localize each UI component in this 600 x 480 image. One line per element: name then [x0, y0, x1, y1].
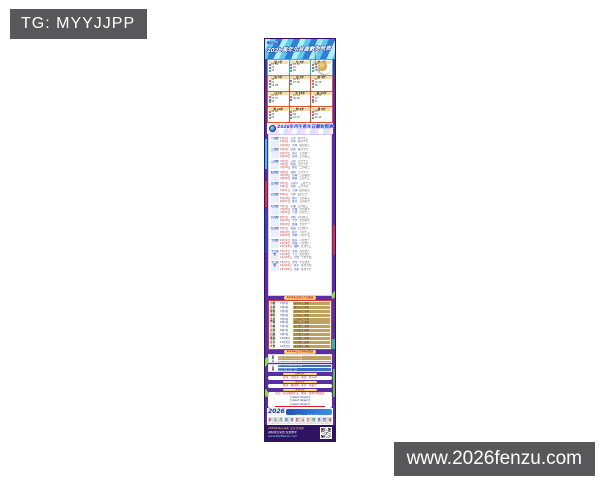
- term-detail: 冬月十七 辰时: [293, 302, 330, 305]
- zodiac-icon-strip: 鼠 07 牛 06 虎 05 兔 04: [267, 416, 333, 425]
- calendar-panel: 一月份 1月1日 元旦 冬月十三 1月5日 小寒: [268, 134, 332, 296]
- zodiac-first-number: 04: [285, 421, 288, 424]
- term-date: 1月5日: [280, 302, 292, 305]
- site-watermark: www.2026fenzu.com: [394, 442, 595, 476]
- term-date: 3月5日: [280, 310, 292, 313]
- zodiac-age: 1岁: [278, 92, 282, 95]
- month-group: 八月份 8月7日 立秋 六月廿五 8月19日 七夕: [271, 216, 330, 226]
- logo-banner-tag: ①正版: [293, 414, 302, 415]
- category-title: 四季生肖: [283, 373, 317, 376]
- calendar-term: 立夏: [291, 185, 296, 188]
- zodiac-number-rows: 02 14 26 38: [312, 79, 332, 88]
- zodiac-number-rows: 03 15 27 39: [290, 79, 310, 85]
- term-name: 立冬: [270, 341, 279, 344]
- zodiac-icon-cell: 蛇 02: [295, 417, 300, 425]
- ball-color-chip: [269, 80, 271, 82]
- table-row: 清明 4月5日 二月十八 卯时: [270, 314, 330, 317]
- summary-line: [object Object]: [269, 403, 331, 406]
- zodiac-number-row: 06: [290, 70, 310, 73]
- logo-banner-text: 马年资料大全: [307, 414, 325, 415]
- month-label: 五月份: [271, 182, 280, 192]
- zodiac-number-row: 16 28: [269, 85, 289, 88]
- poster-footer: 2026年丙午马年 五行天河水 资料永久免费 仅供参考 www.2026fenz…: [265, 425, 335, 441]
- table-row: 芒种 6月5日 四月二十 酉时: [270, 321, 330, 324]
- term-date: 6月5日: [280, 321, 292, 324]
- ball-color-chip: [312, 99, 314, 101]
- month-label: 十一月份: [271, 250, 280, 260]
- zodiac-name: 蛇: [318, 76, 321, 79]
- calendar-banner: 2026年丙午馬年日曆對照表: [267, 123, 333, 134]
- five-elements-block-2: 土 庚午 辛未 戊寅 己卯 丙戌 波 红波 蓝波 绿波 对照 合 单数 双数 大…: [268, 364, 332, 373]
- term-detail: 三月十九 午时: [293, 318, 330, 321]
- month-label: 一月份: [271, 137, 280, 147]
- poster-header: 正版资料 2026馬年生肖歲數對照表: [265, 39, 335, 59]
- month-group: 十二月份 12月7日 大雪 十月廿九 12月22日 冬: [271, 261, 330, 271]
- month-label: 八月份: [271, 216, 280, 226]
- zodiac-age: 8岁: [321, 108, 325, 111]
- month-group: 一月份 1月1日 元旦 冬月十三 1月5日 小寒: [271, 137, 330, 147]
- term-name: 寒露: [270, 337, 279, 340]
- ball-color-chip: [290, 70, 292, 72]
- calendar-term: 冬至: [294, 264, 299, 267]
- ball-color-chip: [290, 96, 292, 98]
- zodiac-number-rows: 45 09 21 33: [290, 111, 310, 120]
- table-row: 水 丙午 丁未 甲寅 乙卯 壬戌: [270, 361, 331, 363]
- zodiac-age: 4岁: [278, 76, 282, 79]
- zodiac-icon-cell: 马 01: [300, 417, 305, 425]
- zodiac-numbers: 21 33: [293, 117, 300, 120]
- ball-color-chip: [269, 96, 271, 98]
- month-group: 三月份 3月3日 元宵 正月十五 3月5日 惊蛰: [271, 160, 330, 170]
- zodiac-age: 3岁: [300, 76, 304, 79]
- zodiac-name: 狗: [296, 108, 299, 111]
- calendar-date: 12月25日: [280, 268, 292, 271]
- zodiac-number-row: 11: [312, 101, 332, 104]
- term-date: 2月4日: [280, 306, 292, 309]
- zodiac-cell: 兔 4岁 40 04: [268, 76, 289, 91]
- zodiac-icon-cell: 猪 08: [327, 417, 332, 425]
- calendar-term: 芒种: [291, 193, 296, 196]
- ball-color-chip: [290, 83, 292, 85]
- calendar-date: 6月21日: [280, 200, 290, 203]
- element-values: 庚午 辛未 戊寅 己卯 丙戌: [278, 365, 331, 367]
- zodiac-number-row: 22: [269, 117, 289, 120]
- month-rows: 3月3日 元宵 正月十五 3月5日 惊蛰 正月十七: [280, 160, 330, 170]
- table-row: 小寒 1月5日 冬月十七 辰时: [270, 302, 330, 305]
- zodiac-number-row: 38: [312, 85, 332, 88]
- calendar-row: 6月21日 夏至 五月初七: [280, 200, 330, 203]
- calendar-term: 春分: [292, 166, 297, 169]
- zodiac-numbers: 16 28: [271, 85, 278, 88]
- month-group: 六月份 6月5日 芒种 四月二十 6月19日 端午: [271, 193, 330, 203]
- edge-decoration-cyan: [265, 139, 267, 169]
- zodiac-icon-cell: 鸡 10: [317, 417, 322, 425]
- calendar-term: 雨水: [292, 155, 297, 158]
- zodiac-number-rows: 18 30 42 06: [290, 64, 310, 73]
- zodiac-numbers: 11: [315, 101, 318, 104]
- table-row: 白露 9月7日 七月廿六 巳时: [270, 333, 330, 336]
- calendar-row: 11月22日 小雪 十月十四: [280, 256, 330, 259]
- calendar-row: 8月23日 处暑 七月十一: [280, 223, 330, 226]
- month-label: 二月份: [271, 148, 280, 158]
- zodiac-summary-panel: [object Object] [object Object] [object …: [268, 395, 332, 408]
- zodiac-first-number: 11: [312, 421, 315, 424]
- zodiac-number-row: 49: [269, 101, 289, 104]
- edge-decoration-red-left: [265, 181, 267, 207]
- logo-strip: 2026 ①正版 马年资料大全: [267, 408, 333, 416]
- month-label: 九月份: [271, 227, 280, 237]
- zodiac-cell: 鸡 10岁 34 46 10: [268, 107, 289, 122]
- zodiac-number-rows: 07 19 31 43: [269, 64, 289, 73]
- calendar-term: 夏至: [292, 200, 297, 203]
- calendar-row: 3月20日 春分 二月初二: [280, 166, 330, 169]
- zodiac-age: 6岁: [300, 61, 304, 64]
- calendar-row: 7月25日 入伏 六月十二: [280, 211, 330, 214]
- calendar-row: 10月23日 霜降 九月十三: [280, 245, 330, 248]
- ball-color-chip: [312, 117, 314, 119]
- month-group: 九月份 9月7日 白露 七月廿六 9月23日 秋分: [271, 227, 330, 237]
- qr-code: [320, 427, 332, 439]
- edge-decoration-teal-right: [332, 339, 335, 349]
- calendar-lunar: 冬月十七: [301, 268, 311, 271]
- calendar-term: 入伏: [292, 211, 297, 214]
- zodiac-first-number: 01: [301, 421, 304, 424]
- month-rows: 12月7日 大雪 十月廿九 12月22日 冬至 冬月十四: [280, 261, 330, 271]
- edge-decoration-green-right: [333, 369, 335, 397]
- calendar-term: 佛诞: [292, 177, 297, 180]
- month-label: 十月份: [271, 239, 280, 249]
- table-row: 立春 2月4日 腊月十七 申时: [270, 306, 330, 309]
- logo-banner: ①正版 马年资料大全: [286, 409, 332, 415]
- category-text: 春肖：虎兔龙 夏肖：蛇马羊: [268, 376, 332, 380]
- zodiac-number-row: 32 44: [312, 117, 332, 120]
- month-label: 四月份: [271, 171, 280, 181]
- zodiac-first-number: 10: [318, 421, 321, 424]
- calendar-row: 2月19日 雨水 正月初三: [280, 155, 330, 158]
- month-rows: 9月7日 白露 七月廿六 9月23日 秋分 八月十三: [280, 227, 330, 237]
- zodiac-numbers: 06: [293, 70, 296, 73]
- ball-color-chip: [269, 64, 271, 66]
- month-rows: 1月1日 元旦 冬月十三 1月5日 小寒 冬月十七: [280, 137, 330, 147]
- zodiac-icon-cell: 牛 06: [273, 417, 278, 425]
- calendar-date: 8月23日: [280, 223, 290, 226]
- calendar-date: 4月29日: [280, 177, 290, 180]
- month-group: 七月份 7月7日 小暑 五月廿三 7月23日 大暑: [271, 205, 330, 215]
- month-label: 十二月份: [271, 261, 280, 271]
- calendar-date: 6月5日: [280, 193, 289, 196]
- calendar-banner-title: 2026年丙午馬年日曆對照表: [277, 126, 334, 130]
- table-row: 立夏 5月5日 三月十九 午时: [270, 318, 330, 321]
- term-date: 12月7日: [280, 345, 292, 348]
- zodiac-icon-cell: 龙 03: [289, 417, 294, 425]
- term-date: 11月7日: [280, 341, 292, 344]
- month-rows: 6月5日 芒种 四月二十 6月19日 端午 五月初五: [280, 193, 330, 203]
- calendar-date: 1月5日: [280, 140, 289, 143]
- zodiac-numbers: 36 48: [293, 98, 300, 101]
- tg-watermark: TG: MYYJJPP: [10, 9, 147, 39]
- calendar-term: 霜降: [294, 245, 299, 248]
- footer-line: www.2026fenzu.com: [268, 435, 314, 439]
- ball-color-chip: [290, 99, 292, 101]
- ball-color-chip: [269, 101, 271, 103]
- ball-color-chip: [312, 70, 314, 72]
- zodiac-cell: 龙 3岁 03 15 27 39: [290, 76, 311, 91]
- calendar-term: 处暑: [292, 223, 297, 226]
- zodiac-category-banners: 四季生肖 春肖：虎兔龙 夏肖：蛇马羊 秋冬生肖 秋肖：猴鸡狗 冬肖：猪鼠牛 天地…: [268, 372, 332, 395]
- calendar-lunar: 五月初七: [299, 200, 309, 203]
- ball-color-chip: [312, 67, 314, 69]
- zodiac-number-row: 21 33: [290, 117, 310, 120]
- ball-color-chip: [269, 70, 271, 72]
- zodiac-first-number: 02: [296, 421, 299, 424]
- term-name: 惊蛰: [270, 310, 279, 313]
- calendar-date: 2月4日: [280, 148, 289, 151]
- zodiac-cell: 牛 6岁 18 30 42: [290, 60, 311, 75]
- element-values: 戊辰 己巳 壬午 癸未 庚寅: [278, 358, 331, 360]
- calendar-term: 七夕: [292, 219, 297, 222]
- calendar-lunar: 正月初三: [299, 155, 309, 158]
- term-date: 10月8日: [280, 337, 292, 340]
- ball-color-chip: [269, 83, 271, 85]
- calendar-lunar: 九月十三: [301, 245, 311, 248]
- term-detail: 二月十八 卯时: [293, 314, 330, 317]
- term-detail: 八月廿八 申时: [293, 337, 330, 340]
- solar-terms-table: 小寒 1月5日 冬月十七 辰时 立春 2月4日 腊月十七 申时 惊蛰 3月5日 …: [268, 300, 332, 350]
- zodiac-numbers: 49: [271, 101, 274, 104]
- element-name: 水: [270, 361, 277, 363]
- calendar-lunar: 十月十四: [301, 256, 311, 259]
- category-banner: 四季生肖 春肖：虎兔龙 夏肖：蛇马羊: [268, 373, 332, 380]
- ball-color-chip: [312, 86, 314, 88]
- ball-color-chip: [269, 99, 271, 101]
- month-group: 十一月份 11月7日 立冬 九月廿八 11月8日 下元: [271, 250, 330, 260]
- table-row: 土 庚午 辛未 戊寅 己卯 丙戌: [270, 365, 331, 367]
- zodiac-icon-cell: 虎 05: [278, 417, 283, 425]
- zodiac-icon-cell: 狗 09: [322, 417, 327, 425]
- term-detail: 七月廿六 巳时: [293, 333, 330, 336]
- month-group: 十月份 10月1日 国庆 八月廿一 10月8日 寒露: [271, 239, 330, 249]
- category-title: 天地生肖: [283, 389, 317, 392]
- zodiac-number-rows: 40 04 16 28: [269, 79, 289, 88]
- month-rows: 11月7日 立冬 九月廿八 11月8日 下元 九月廿九: [280, 250, 330, 260]
- zodiac-icon-cell: 鼠 07: [268, 417, 273, 425]
- calendar-date: 9月7日: [280, 227, 289, 230]
- zodiac-number-row: 27 39: [290, 82, 310, 85]
- term-name: 白露: [270, 333, 279, 336]
- term-date: 9月7日: [280, 333, 292, 336]
- calendar-lunar: 八月十五: [299, 234, 309, 237]
- term-date: 4月5日: [280, 314, 292, 317]
- term-detail: 五月廿三 戌时: [293, 325, 330, 328]
- calendar-row: 5月21日 小满 四月初五: [280, 189, 330, 192]
- calendar-lunar: 三月十三: [299, 177, 309, 180]
- zodiac-first-number: 12: [307, 421, 310, 424]
- ball-color-chip: [312, 101, 314, 103]
- table-row: 木 戊辰 己巳 壬午 癸未 庚寅: [270, 358, 331, 360]
- calendar-term: 立春: [291, 148, 296, 151]
- term-detail: 正月十七 子时: [293, 310, 330, 313]
- calendar-date: 8月19日: [280, 219, 290, 222]
- zodiac-cell: 马 1岁 01 13 25 37: [268, 92, 289, 107]
- category-banner: 秋冬生肖 秋肖：猴鸡狗 冬肖：猪鼠牛: [268, 381, 332, 388]
- element-values: 丙午 丁未 甲寅 乙卯 壬戌: [278, 361, 331, 363]
- term-name: 小寒: [270, 302, 279, 305]
- calendar-term: 小满: [292, 189, 297, 192]
- zodiac-first-number: 06: [274, 421, 277, 424]
- calendar-date: 9月25日: [280, 234, 290, 237]
- zodiac-age: 9岁: [300, 108, 304, 111]
- calendar-lunar: 六月十二: [299, 211, 309, 214]
- zodiac-cell: 猴 11岁 23 35 47: [311, 92, 332, 107]
- term-name: 清明: [270, 314, 279, 317]
- month-rows: 5月1日 劳动节 三月十五 5月5日 立夏 三月十九: [280, 182, 330, 192]
- table-row: 惊蛰 3月5日 正月十七 子时: [270, 310, 330, 313]
- zodiac-cell: 狗 9岁 45 09: [290, 107, 311, 122]
- calendar-date: 5月5日: [280, 185, 289, 188]
- month-rows: 7月7日 小暑 五月廿三 7月23日 大暑 六月初十: [280, 205, 330, 215]
- calendar-lunar: 四月初五: [299, 189, 309, 192]
- ball-color-chip: [312, 83, 314, 85]
- term-detail: 四月二十 酉时: [293, 321, 330, 324]
- zodiac-number-rows: 08 20 32 44: [312, 111, 332, 120]
- term-detail: 腊月十七 申时: [293, 306, 330, 309]
- calendar-date: 10月23日: [280, 245, 292, 248]
- zodiac-age: 7岁: [278, 61, 282, 64]
- calendar-term: 中秋: [292, 234, 297, 237]
- ball-color-chip: [312, 96, 314, 98]
- page: TG: MYYJJPP www.2026fenzu.com 正版资料 2026馬…: [0, 0, 600, 480]
- calendar-date: 12月22日: [280, 264, 292, 267]
- calendar-term: 大寒: [292, 144, 297, 147]
- zodiac-first-number: 05: [280, 421, 283, 424]
- term-name: 小暑: [270, 325, 279, 328]
- zodiac-number-row: 36 48: [290, 98, 310, 101]
- calendar-date: 5月21日: [280, 189, 290, 192]
- calendar-date: 1月20日: [280, 144, 290, 147]
- table-row: 大雪 12月7日 十月廿九 丑时: [270, 345, 330, 348]
- zodiac-icon-cell: 兔 04: [284, 417, 289, 425]
- month-label: 七月份: [271, 205, 280, 215]
- zodiac-cell: 蛇 2岁 02 14 26: [311, 76, 332, 91]
- ball-color-chip: [269, 117, 271, 119]
- zodiac-poster: 正版资料 2026馬年生肖歲數對照表 鼠 7岁: [264, 38, 336, 442]
- zodiac-numbers: 38: [315, 85, 318, 88]
- zodiac-name: 猪: [318, 108, 321, 111]
- term-detail: 九月廿八 亥时: [293, 341, 330, 344]
- zodiac-numbers: 27 39: [293, 82, 300, 85]
- table-row: 立冬 11月7日 九月廿八 亥时: [270, 341, 330, 344]
- zodiac-numbers: 22: [271, 117, 274, 120]
- table-row: 寒露 10月8日 八月廿八 申时: [270, 337, 330, 340]
- term-date: 8月7日: [280, 329, 292, 332]
- calendar-date: 3月20日: [280, 166, 290, 169]
- edge-decoration-red-right: [333, 225, 335, 255]
- zodiac-first-number: 09: [323, 421, 326, 424]
- term-name: 立秋: [270, 329, 279, 332]
- zodiac-number-rows: 01 13 25 37 49: [269, 95, 289, 104]
- calendar-term: 小雪: [294, 256, 299, 259]
- calendar-date: 2月19日: [280, 155, 290, 158]
- zodiac-icon-cell: 猴 11: [311, 417, 316, 425]
- zodiac-cell: 猪 8岁 08 20: [311, 107, 332, 122]
- five-elements-block-1: 金 乙巳 甲子 乙丑 壬申 癸酉 木 戊辰 己巳 壬午 癸未 庚寅 水 丙午 丁…: [268, 354, 332, 363]
- edge-decoration-blue-left: [265, 209, 267, 253]
- ball-color-chip: [269, 67, 271, 69]
- zodiac-number-rows: 12 24 36 48: [290, 95, 310, 101]
- calendar-row: 12月25日 圣诞 冬月十七: [280, 268, 330, 271]
- zodiac-icon-cell: 羊 12: [306, 417, 311, 425]
- zodiac-name: 兔: [274, 76, 277, 79]
- zodiac-numbers: 32 44: [315, 117, 322, 120]
- table-row: 立秋 8月7日 六月廿五 寅时: [270, 329, 330, 332]
- month-label: 六月份: [271, 193, 280, 203]
- term-date: 7月7日: [280, 325, 292, 328]
- month-rows: 10月1日 国庆 八月廿一 10月8日 寒露 八月廿八: [280, 239, 330, 249]
- calendar-lunar: 七月十一: [299, 223, 309, 226]
- zodiac-cell: 羊 12岁 12 24 36 48: [290, 92, 311, 107]
- calendar-row: 1月20日 大寒 腊月初二: [280, 144, 330, 147]
- term-detail: 六月廿五 寅时: [293, 329, 330, 332]
- zodiac-numbers: 43: [271, 70, 274, 73]
- ball-color-chip: [269, 86, 271, 88]
- calendar-term: 小寒: [291, 140, 296, 143]
- ball-color-chip: [312, 80, 314, 82]
- summary-lines: [object Object] [object Object] [object …: [269, 396, 331, 406]
- term-detail: 十月廿九 丑时: [293, 345, 330, 348]
- zodiac-number-rows: 23 35 47 11: [312, 95, 332, 104]
- calendar-row: 4月29日 佛诞 三月十三: [280, 177, 330, 180]
- month-rows: 4月5日 清明 二月十八 4月20日 谷雨 三月初四: [280, 171, 330, 181]
- header-badge: 正版资料: [267, 41, 280, 45]
- month-group: 四月份 4月5日 清明 二月十八 4月20日 谷雨: [271, 171, 330, 181]
- calendar-term: 白露: [291, 227, 296, 230]
- month-group: 二月份 2月4日 立春 腊月十七 2月17日 春节: [271, 148, 330, 158]
- zodiac-first-number: 07: [269, 421, 272, 424]
- zodiac-first-number: 08: [329, 421, 332, 424]
- term-name: 大雪: [270, 345, 279, 348]
- table-row: 小暑 7月7日 五月廿三 戌时: [270, 325, 330, 328]
- zodiac-number-rows: 34 46 10 22: [269, 111, 289, 120]
- ball-color-chip: [290, 117, 292, 119]
- calendar-date: 7月25日: [280, 211, 290, 214]
- calendar-lunar: 腊月初二: [299, 144, 309, 147]
- ball-color-chip: [312, 64, 314, 66]
- month-label: 三月份: [271, 160, 280, 170]
- month-group: 五月份 5月1日 劳动节 三月十五 5月5日 立夏: [271, 182, 330, 192]
- zodiac-number-row: 43: [269, 70, 289, 73]
- calendar-row: 9月25日 中秋 八月十五: [280, 234, 330, 237]
- year-logo: 2026: [268, 408, 285, 416]
- term-name: 芒种: [270, 321, 279, 324]
- five-elements-table: 金 乙巳 甲子 乙丑 壬申 癸酉 木 戊辰 己巳 壬午 癸未 庚寅 水 丙午 丁…: [268, 354, 332, 372]
- zodiac-first-number: 03: [290, 421, 293, 424]
- category-text: 秋肖：猴鸡狗 冬肖：猪鼠牛: [268, 384, 332, 388]
- category-title: 秋冬生肖: [283, 381, 317, 384]
- calendar-term: 圣诞: [294, 268, 299, 271]
- qr-code-pattern: [321, 428, 331, 438]
- globe-icon: [269, 125, 276, 132]
- month-rows: 8月7日 立秋 六月廿五 8月19日 七夕 七月初七: [280, 216, 330, 226]
- calendar-date: 11月22日: [280, 256, 292, 259]
- zodiac-age: 2岁: [321, 76, 325, 79]
- zodiac-cell: 鼠 7岁 07 19 31: [268, 60, 289, 75]
- term-name: 立春: [270, 306, 279, 309]
- month-rows: 2月4日 立春 腊月十七 2月17日 春节 正月初一: [280, 148, 330, 158]
- calendar-lunar: 二月初二: [299, 166, 309, 169]
